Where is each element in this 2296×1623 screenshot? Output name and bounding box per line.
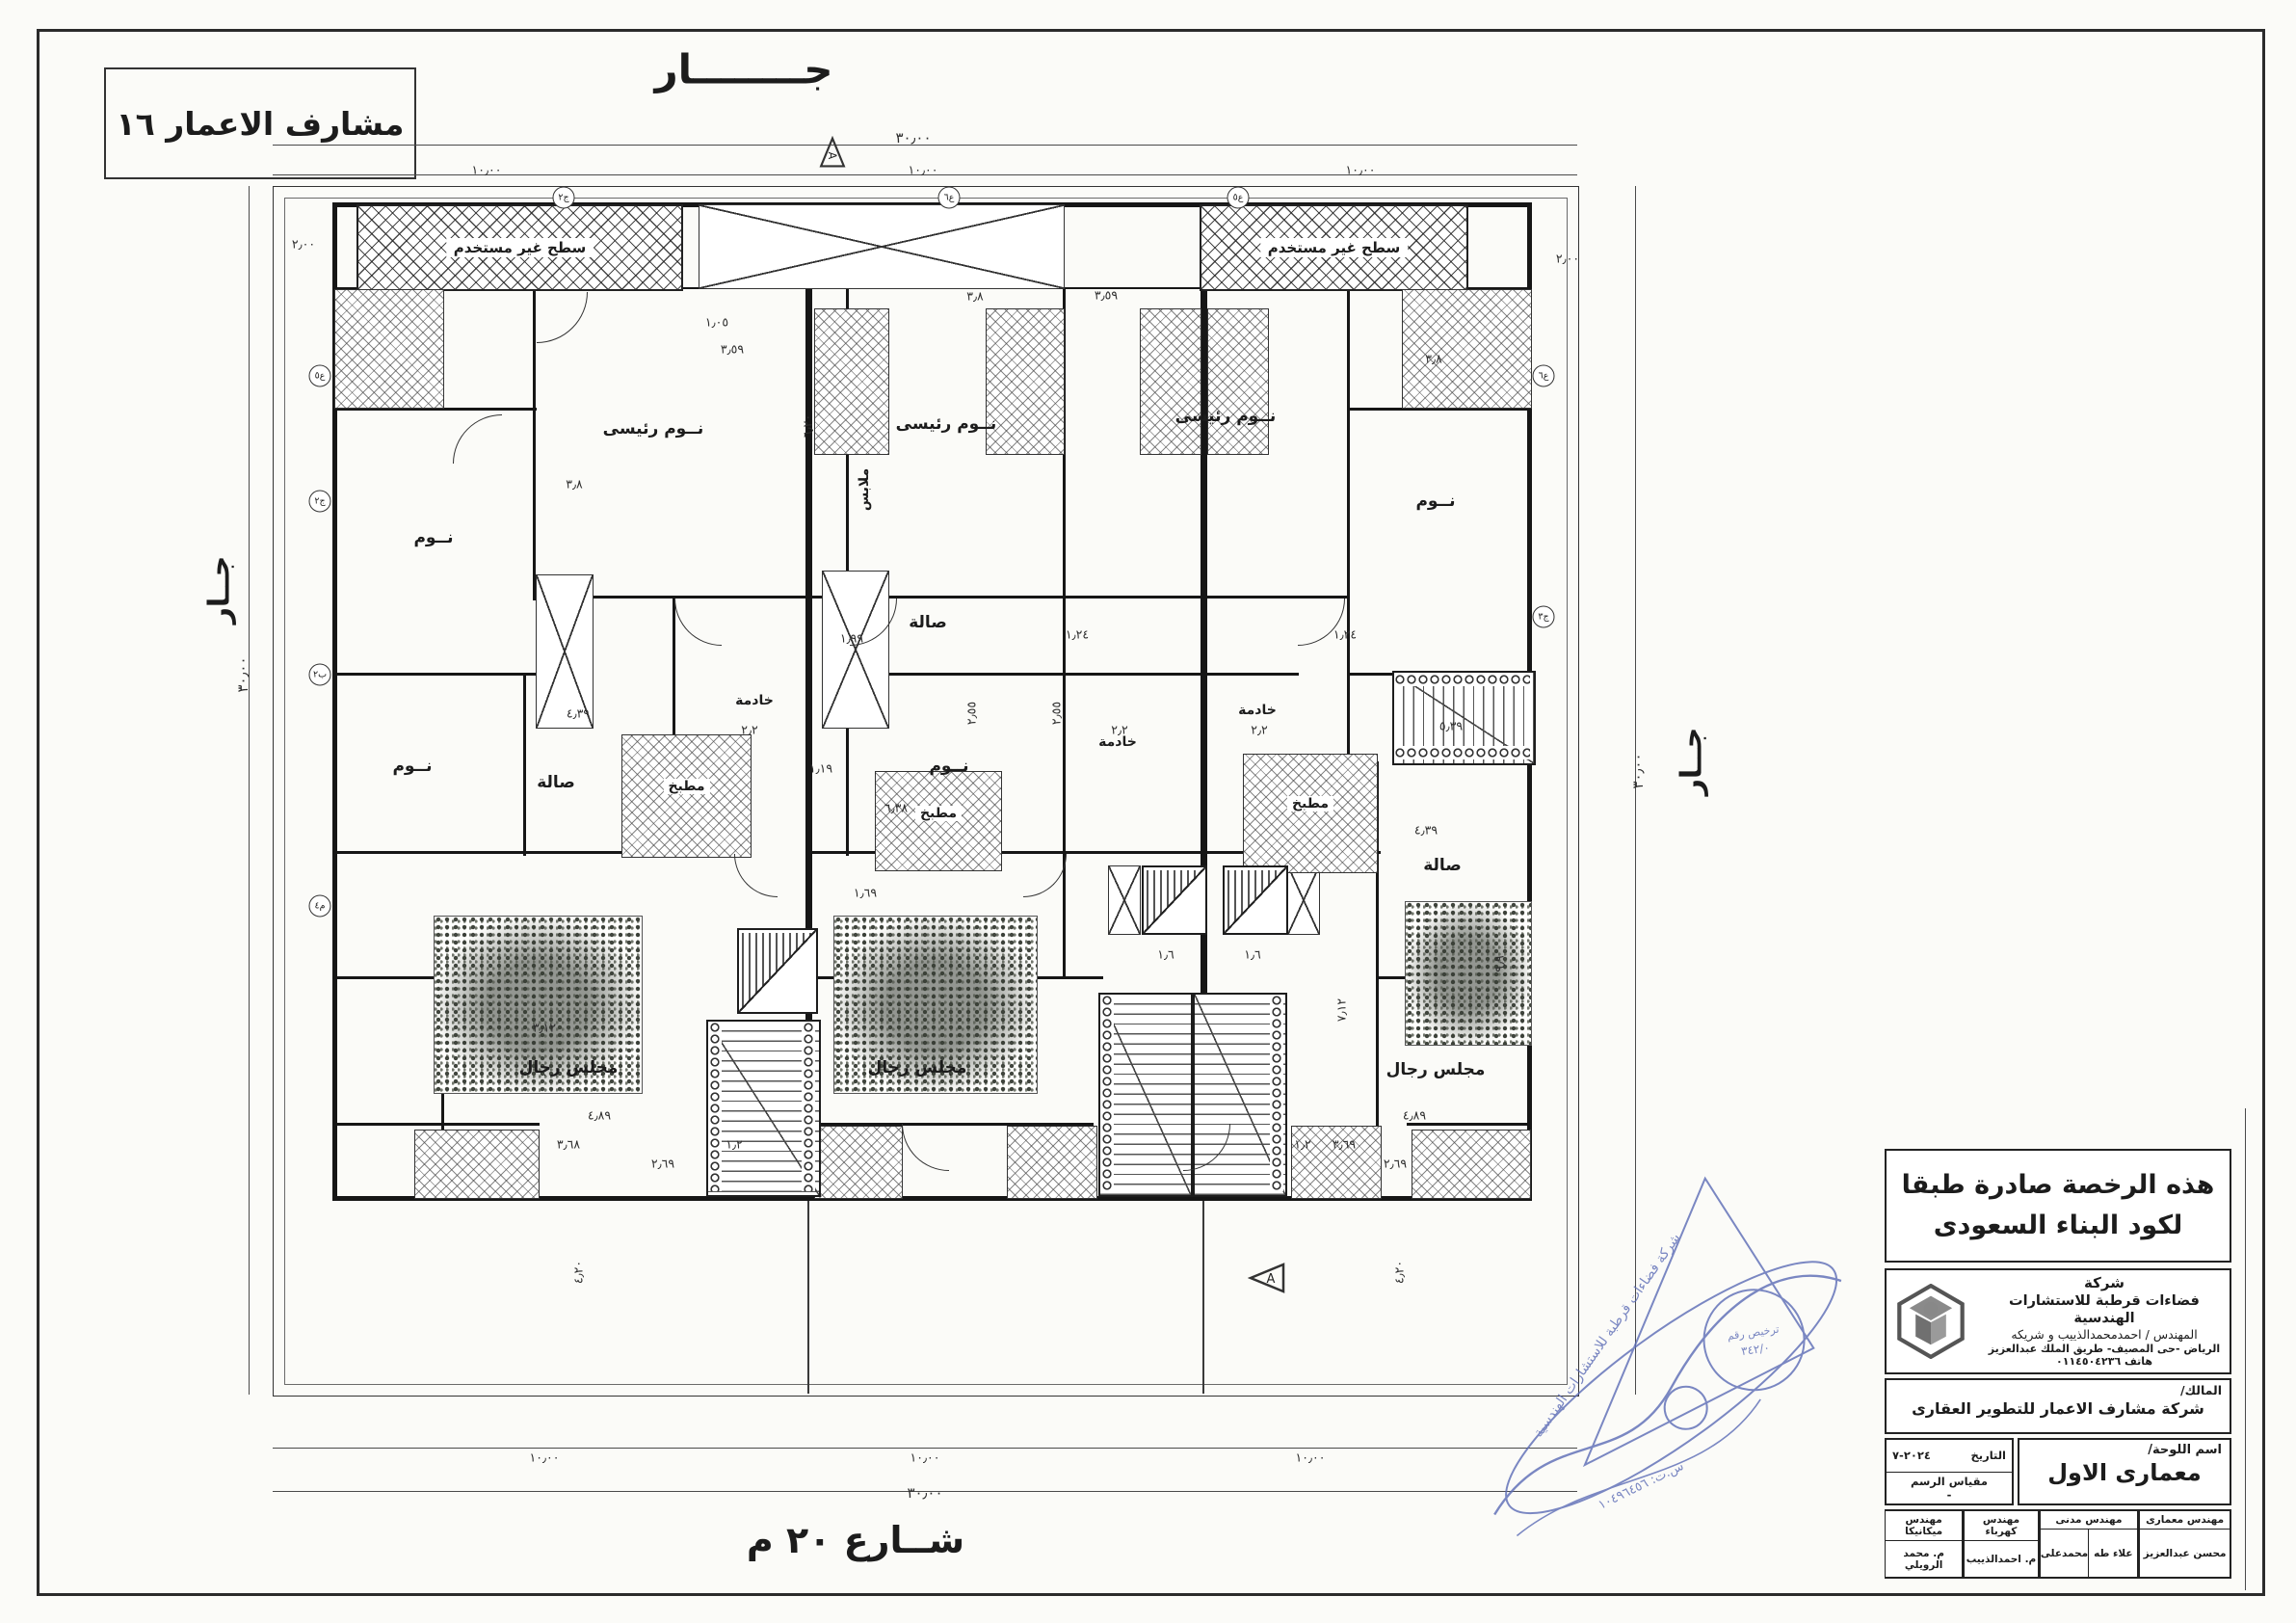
staff-role: مهندس كهرباء xyxy=(1965,1511,2037,1541)
room-label-bedroom: نــوم xyxy=(929,757,968,776)
dim: ٤٫٢٠ xyxy=(1392,1261,1407,1284)
dim: ١٫٢ xyxy=(726,1137,743,1152)
kitchen-label: مطبخ xyxy=(915,806,962,821)
staff-electrical: مهندس كهرباء م. احمدالذييب xyxy=(1964,1509,2039,1579)
scale-label: مقياس الرسم xyxy=(1911,1475,1988,1488)
unused-roof-area: سطح غير مستخدم xyxy=(356,204,683,291)
dimension-line xyxy=(249,186,250,1395)
planter xyxy=(1405,901,1532,1046)
staff-name: م. محمد الرويلي xyxy=(1886,1548,1962,1571)
unused-roof-area: سطح غير مستخدم xyxy=(1200,204,1468,291)
company-word: شركة xyxy=(1979,1274,2230,1292)
dim: ١٫٢٤ xyxy=(1066,627,1089,642)
dim: ٢٫٥٥ xyxy=(1049,702,1064,725)
dim: ٢٫٦٩ xyxy=(651,1157,674,1171)
scale-value: - xyxy=(1947,1488,1952,1502)
staff-role: مهندس ميكانيكا xyxy=(1886,1511,1962,1541)
staff-architect: مهندس معمارى محسن عبدالعزيز xyxy=(2139,1509,2231,1579)
wall-tag: ج٣ xyxy=(1533,606,1555,628)
wall xyxy=(1347,287,1350,764)
street-label: شــارع ٢٠ م xyxy=(747,1519,964,1561)
stamp-license-value: ٣٤٢/٠ xyxy=(1740,1341,1770,1358)
unused-roof-label: سطح غير مستخدم xyxy=(1260,238,1408,257)
bathroom-floor xyxy=(1207,308,1269,455)
bathroom-floor xyxy=(814,308,889,455)
room-label-majlis: مجلس رجال xyxy=(519,1058,619,1078)
bathroom-floor xyxy=(1412,1130,1531,1199)
license-note-line2: لكود البناء السعودى xyxy=(1934,1206,2182,1246)
dim: ٤٫٨٩ xyxy=(588,1108,611,1123)
dim-total-height: ٣٠٫٠٠ xyxy=(234,656,251,692)
company-name: فضاءات قرطبة للاستشارات الهندسية xyxy=(1979,1292,2230,1327)
bathroom-floor xyxy=(986,308,1065,455)
sheet-name-box: اسم اللوحة/ معمارى الاول xyxy=(2018,1438,2231,1505)
staff-name: م. احمدالذييب xyxy=(1965,1554,2037,1565)
staff-row: مهندس معمارى محسن عبدالعزيز مهندس مدنى م… xyxy=(1885,1509,2231,1579)
section-marker: A xyxy=(1248,1262,1286,1298)
section-marker: A xyxy=(815,136,847,169)
wall xyxy=(523,673,526,856)
kitchen-floor: مطبخ xyxy=(875,771,1002,871)
dim: ٢٫٢ xyxy=(1251,723,1268,737)
room-label-majlis: مجلس رجال xyxy=(868,1058,967,1078)
project-name-box: مشارف الاعمار ١٦ xyxy=(104,67,416,179)
company-logo xyxy=(1887,1284,1975,1359)
open-shaft xyxy=(699,204,1065,289)
stair-step-numbers xyxy=(1394,673,1530,686)
staff-role: مهندس معمارى xyxy=(2140,1511,2230,1530)
staff-mechanical: مهندس ميكانيكا م. محمد الرويلي xyxy=(1885,1509,1964,1579)
dim: ١٫٢ xyxy=(1294,1137,1311,1152)
wall-tag: ع٦ xyxy=(938,187,961,209)
light-well xyxy=(822,571,889,729)
dim: ٢٫٦٩ xyxy=(1384,1157,1407,1171)
dim-setback: ٢٫٠٠ xyxy=(292,237,315,252)
room-label-master-bedroom: نــوم رئيسى xyxy=(1175,407,1277,426)
room-label-majlis: مجلس رجال xyxy=(1386,1060,1486,1079)
wall-tag: م٤ xyxy=(309,895,331,918)
dim-unit-width: ١٠٫٠٠ xyxy=(530,1450,560,1465)
owner-box: المالك/ شركة مشارف الاعمار للتطوير العقا… xyxy=(1885,1378,2231,1434)
stair-step-numbers xyxy=(1100,995,1114,1191)
dim: ٢٫٥٥ xyxy=(964,702,979,725)
duct-shaft xyxy=(1287,865,1320,935)
dim: ٣٫٥٩ xyxy=(721,342,744,357)
dim-unit-width: ١٠٫٠٠ xyxy=(909,163,938,177)
room-label-bedroom: نــوم xyxy=(413,528,453,547)
dimension-line xyxy=(273,1448,1577,1449)
dim: ١٫٦ xyxy=(1244,947,1261,962)
elevator xyxy=(1142,865,1207,935)
kitchen-floor: مطبخ xyxy=(621,734,752,858)
date-label: التاريخ xyxy=(1971,1449,2007,1462)
dim-total-width: ٣٠٫٠٠ xyxy=(895,129,931,146)
dim: ٣٫٨ xyxy=(1425,352,1442,366)
dim: ٣٫١٢ xyxy=(533,1021,556,1035)
dim: ١٫٦٩ xyxy=(854,886,877,900)
project-name: مشارف الاعمار ١٦ xyxy=(117,105,405,143)
stamp-company-line: شركة فضاءات قرطبة للاستشارات الهندسية xyxy=(1531,1231,1684,1440)
bathroom-floor xyxy=(1402,289,1532,409)
stair-step-numbers xyxy=(1394,746,1530,759)
stair-step-numbers xyxy=(708,1022,722,1191)
staff-name: محمدعلى xyxy=(2041,1548,2089,1559)
stamp-cr-line: س.ت: ١٠٤٩٦٤٥٦ xyxy=(1597,1459,1686,1513)
dim: ٣٫٥٩ xyxy=(1095,288,1118,303)
section-letter: A xyxy=(826,152,838,160)
dim: ٣٫٨ xyxy=(566,477,583,492)
dim-total-height: ٣٠٫٠٠ xyxy=(1629,753,1647,788)
dim: ١٫٠٥ xyxy=(705,315,728,330)
staff-name: محسن عبدالعزيز xyxy=(2140,1548,2230,1559)
wall-tag: ج٢ xyxy=(309,491,331,513)
dim: ٤٫٣٩ xyxy=(567,706,590,721)
room-label-master-bedroom: نــوم رئيسى xyxy=(603,419,704,439)
dim-unit-width: ١٠٫٠٠ xyxy=(1346,163,1376,177)
room-label-hall: صالة xyxy=(537,773,575,792)
wall xyxy=(1202,1201,1204,1394)
dim: ٦٫٣٨ xyxy=(884,801,908,815)
title-block-border xyxy=(2245,1108,2246,1590)
room-label-maid: خادمة xyxy=(1238,703,1277,718)
wall-tag: ع٦ xyxy=(1533,365,1555,387)
cell-divider xyxy=(2088,1530,2089,1577)
company-phone: هاتف ٠١١٤٥٠٤٢٣٦ xyxy=(1979,1355,2230,1369)
kitchen-label: مطبخ xyxy=(1287,796,1333,811)
kitchen-floor: مطبخ xyxy=(1243,754,1378,873)
dim-total-width: ٣٠٫٠٠ xyxy=(907,1484,942,1502)
wall-tag: ج٢ xyxy=(553,187,575,209)
company-engineer: المهندس / احمدمحمدالذييب و شريكه xyxy=(1979,1327,2230,1343)
bathroom-floor xyxy=(814,1126,903,1199)
dim: ٣٫٨ xyxy=(966,289,984,304)
dim: ١٫٩٩ xyxy=(840,631,863,646)
room-label-bedroom: نــوم xyxy=(392,757,432,776)
wall xyxy=(332,1123,540,1126)
kitchen-label: مطبخ xyxy=(663,779,709,794)
room-label-maid: خادمة xyxy=(735,693,774,708)
stair-step-numbers xyxy=(802,1022,815,1191)
wall xyxy=(332,851,621,854)
dim: ٢٫٢ xyxy=(1111,723,1128,737)
bathroom-floor xyxy=(1140,308,1201,455)
neighbor-label-top: جــــــــار xyxy=(654,46,832,93)
company-address: الرياض -حى المصيف- طريق الملك عبدالعزيز xyxy=(1979,1343,2230,1356)
wall xyxy=(1407,1123,1532,1126)
staff-civil: مهندس مدنى محمدعلى علاء طه xyxy=(2040,1509,2140,1579)
dim: ٥٫٣٩ xyxy=(1439,719,1463,733)
drawing-sheet: مشارف الاعمار ١٦ جــــــــار جــار جــار… xyxy=(0,0,2296,1623)
dim: ٤٫٨٩ xyxy=(1403,1108,1426,1123)
room-label-master-bedroom: نــوم رئيسى xyxy=(896,414,997,434)
dim: ٧٫١٢ xyxy=(1334,998,1349,1022)
section-letter: A xyxy=(1267,1272,1276,1287)
neighbor-label-left: جــار xyxy=(203,556,237,625)
approval-stamp: شركة فضاءات قرطبة للاستشارات الهندسية تر… xyxy=(1412,1140,1922,1571)
wall xyxy=(807,1201,809,1394)
neighbor-label-right: جــار xyxy=(1676,728,1709,796)
dim: ٩٫٩ xyxy=(1492,955,1507,972)
elevator xyxy=(1223,865,1288,935)
room-label-hall: صالة xyxy=(909,613,947,632)
unused-roof-label: سطح غير مستخدم xyxy=(446,238,594,257)
company-box: شركة فضاءات قرطبة للاستشارات الهندسية ال… xyxy=(1885,1268,2231,1374)
sheet-name-value: معمارى الاول xyxy=(2027,1459,2222,1486)
staff-role: مهندس مدنى xyxy=(2041,1511,2138,1530)
wall xyxy=(848,673,1202,676)
dim: ٦٫٢٠ xyxy=(801,414,815,438)
stamp-license-label: ترخيص رقم xyxy=(1727,1323,1780,1343)
dim: ٢٫٢ xyxy=(741,723,758,737)
room-label-dressing: ملابس xyxy=(857,468,872,511)
dim: ٣٫٦٩ xyxy=(1333,1137,1356,1152)
wall-tag: ب٢ xyxy=(309,664,331,686)
dim-unit-width: ١٠٫٠٠ xyxy=(910,1450,940,1465)
bathroom-floor xyxy=(1007,1126,1097,1199)
elevator xyxy=(737,928,818,1014)
room-label-hall: صالة xyxy=(1423,856,1462,875)
license-note-box: هذه الرخصة صادرة طبقا لكود البناء السعود… xyxy=(1885,1149,2231,1263)
wall xyxy=(533,287,536,600)
room-label-bedroom: نــوم xyxy=(1415,492,1455,511)
owner-label: المالك/ xyxy=(1894,1383,2222,1397)
license-note-line1: هذه الرخصة صادرة طبقا xyxy=(1902,1165,2215,1206)
dim: ١٫١٩ xyxy=(809,761,832,776)
wall-tag: ع٥ xyxy=(1227,187,1250,209)
dim-unit-width: ١٠٫٠٠ xyxy=(472,163,502,177)
bathroom-floor xyxy=(334,289,444,409)
sheet-name-label: اسم اللوحة/ xyxy=(2027,1443,2222,1457)
dim: ١٫٦ xyxy=(1157,947,1174,962)
bathroom-floor xyxy=(414,1130,540,1199)
dim: ٣٫٦٨ xyxy=(557,1137,580,1152)
wall xyxy=(1207,673,1299,676)
owner-name: شركة مشارف الاعمار للتطوير العقارى xyxy=(1894,1399,2222,1418)
staff-name: علاء طه xyxy=(2089,1548,2137,1559)
dim: ٤٫٢٠ xyxy=(571,1261,586,1284)
dim-unit-width: ١٠٫٠٠ xyxy=(1296,1450,1326,1465)
dim: ١٫٢٤ xyxy=(1333,627,1357,642)
wall xyxy=(812,851,1202,854)
duct-shaft xyxy=(1108,865,1141,935)
dim-setback: ٢٫٠٠ xyxy=(1556,252,1579,266)
stair-step-numbers xyxy=(1270,995,1283,1191)
dim: ٤٫٣٩ xyxy=(1414,823,1438,838)
wall xyxy=(332,673,537,676)
wall-tag: ع٥ xyxy=(309,365,331,387)
